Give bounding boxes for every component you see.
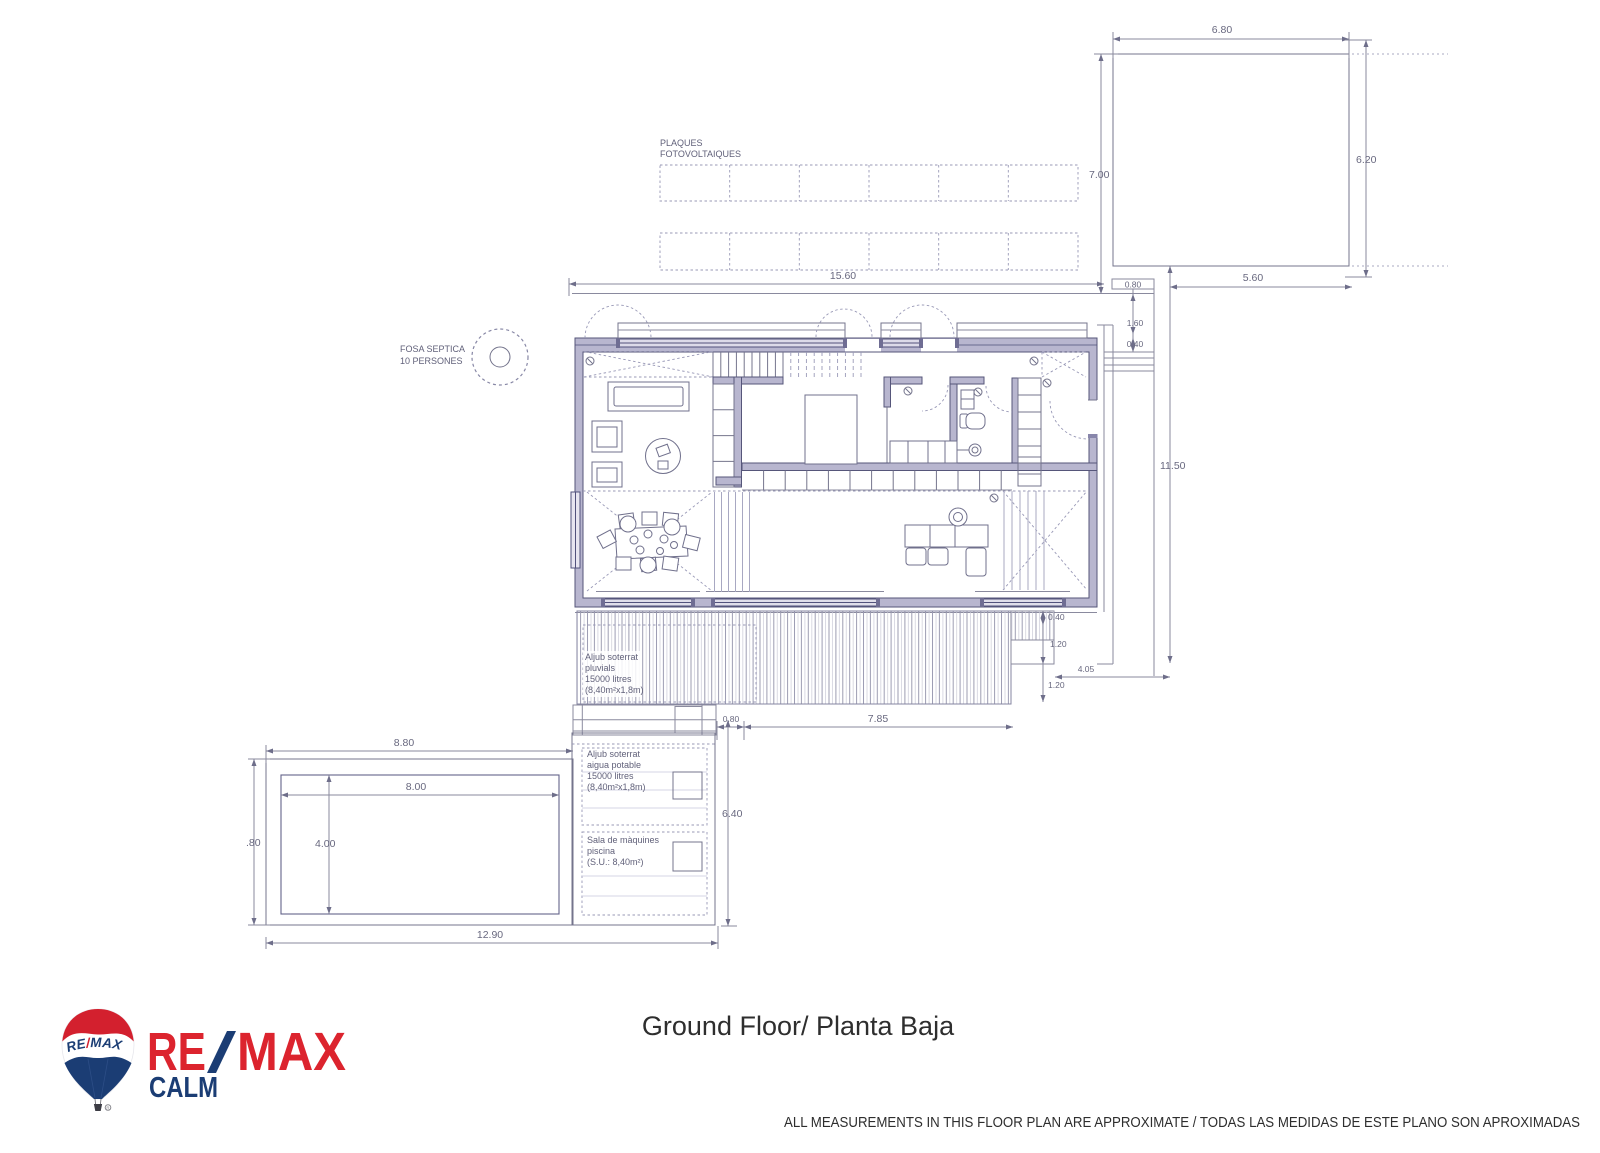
svg-text:(8,40m²x1,8m): (8,40m²x1,8m) xyxy=(587,782,646,792)
svg-text:.80: .80 xyxy=(246,837,261,849)
svg-text:0.80: 0.80 xyxy=(723,714,740,724)
svg-text:FOSA SEPTICA: FOSA SEPTICA xyxy=(400,344,465,354)
svg-text:7.00: 7.00 xyxy=(1089,169,1110,181)
svg-text:Aljub soterrat: Aljub soterrat xyxy=(587,749,641,759)
svg-text:15000 litres: 15000 litres xyxy=(587,771,634,781)
svg-text:15000 litres: 15000 litres xyxy=(585,674,632,684)
svg-text:CALM: CALM xyxy=(149,1072,218,1104)
svg-text:aigua potable: aigua potable xyxy=(587,760,641,770)
svg-text:4.00: 4.00 xyxy=(315,838,336,850)
svg-text:1.20: 1.20 xyxy=(1050,639,1067,649)
svg-text:4.05: 4.05 xyxy=(1078,664,1095,674)
svg-text:6.20: 6.20 xyxy=(1356,154,1377,166)
svg-text:piscina: piscina xyxy=(587,846,615,856)
svg-text:8.80: 8.80 xyxy=(394,737,415,749)
svg-text:ALL MEASUREMENTS IN THIS FLOOR: ALL MEASUREMENTS IN THIS FLOOR PLAN ARE … xyxy=(784,1115,1580,1131)
svg-text:0.40: 0.40 xyxy=(1127,339,1144,349)
svg-text:pluvials: pluvials xyxy=(585,663,616,673)
svg-text:Ground Floor/ Planta Baja: Ground Floor/ Planta Baja xyxy=(642,1011,955,1041)
svg-text:MAX: MAX xyxy=(237,1022,346,1082)
svg-text:6.80: 6.80 xyxy=(1212,24,1233,36)
svg-text:12.90: 12.90 xyxy=(477,929,503,941)
svg-text:11.50: 11.50 xyxy=(1160,460,1186,472)
svg-text:(8,40m²x1,8m): (8,40m²x1,8m) xyxy=(585,685,644,695)
svg-text:5.60: 5.60 xyxy=(1243,272,1264,284)
svg-text:(S.U.: 8,40m²): (S.U.: 8,40m²) xyxy=(587,857,644,867)
svg-text:6.40: 6.40 xyxy=(722,808,743,820)
svg-text:0.40: 0.40 xyxy=(1048,612,1065,622)
svg-text:7.85: 7.85 xyxy=(868,713,889,725)
svg-text:1.20: 1.20 xyxy=(1048,680,1065,690)
svg-text:0.80: 0.80 xyxy=(1125,280,1142,290)
svg-text:1.60: 1.60 xyxy=(1127,318,1144,328)
svg-text:PLAQUES: PLAQUES xyxy=(660,138,703,148)
svg-text:Sala de màquines: Sala de màquines xyxy=(587,835,660,845)
svg-text:10 PERSONES: 10 PERSONES xyxy=(400,356,463,366)
svg-text:Aljub soterrat: Aljub soterrat xyxy=(585,652,639,662)
svg-text:R: R xyxy=(106,1106,109,1111)
svg-text:FOTOVOLTAIQUES: FOTOVOLTAIQUES xyxy=(660,149,741,159)
svg-text:15.60: 15.60 xyxy=(830,270,856,282)
svg-text:8.00: 8.00 xyxy=(406,781,427,793)
